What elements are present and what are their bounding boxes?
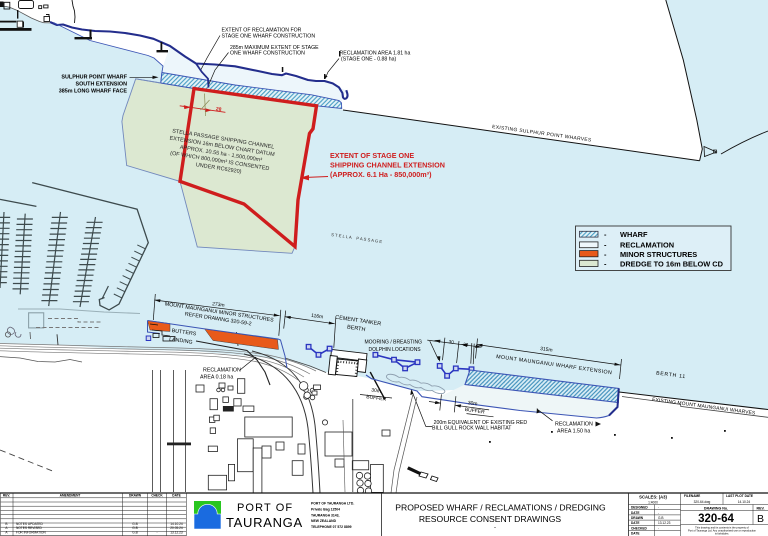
svg-text:G.B: G.B [132,530,138,534]
svg-text:-: - [494,525,496,531]
svg-text:EXTENT OF STAGE ONE: EXTENT OF STAGE ONE [330,151,414,160]
svg-text:CHECKED: CHECKED [631,526,647,530]
svg-text:SCALES: (A3): SCALES: (A3) [639,495,667,500]
svg-text:AMENDMENT: AMENDMENT [60,494,81,498]
svg-text:NEW ZEALAND: NEW ZEALAND [311,519,337,523]
svg-text:DRAWN: DRAWN [129,494,142,498]
svg-text:-: - [658,526,659,530]
svg-text:DREDGE TO 16m BELOW CD: DREDGE TO 16m BELOW CD [620,260,724,269]
svg-text:LAST PLOT DATE: LAST PLOT DATE [726,494,753,498]
svg-text:DRAWING No.: DRAWING No. [704,506,728,510]
svg-text:28: 28 [216,106,223,113]
svg-text:MOORING / BREASTING: MOORING / BREASTING [365,340,423,346]
svg-text:385m LONG WHARF FACE: 385m LONG WHARF FACE [59,89,128,95]
svg-text:AREA 1.50 ha: AREA 1.50 ha [557,429,590,435]
svg-text:DATE: DATE [631,532,639,536]
svg-text:MINOR STRUCTURES: MINOR STRUCTURES [620,250,697,259]
svg-text:DOLPHIN LOCATIONS: DOLPHIN LOCATIONS [369,347,422,353]
svg-text:FILENAME: FILENAME [684,494,700,498]
svg-text:(APPROX. 6.1 Ha - 850,000m³): (APPROX. 6.1 Ha - 850,000m³) [330,170,432,179]
svg-text:ONE WHARF CONSTRUCTION: ONE WHARF CONSTRUCTION [230,51,305,57]
svg-text:320-64.dwg: 320-64.dwg [694,500,711,504]
svg-text:B: B [757,513,764,525]
svg-text:Private Bag 12504: Private Bag 12504 [311,507,340,511]
svg-text:RESOURCE CONSENT DRAWINGS: RESOURCE CONSENT DRAWINGS [419,514,562,524]
svg-text:PROPOSED WHARF / RECLAMATIONS: PROPOSED WHARF / RECLAMATIONS / DREDGING [395,502,606,512]
svg-text:STAGE ONE WHARF CONSTRUCTION: STAGE ONE WHARF CONSTRUCTION [222,33,316,39]
svg-text:-: - [658,506,659,510]
svg-text:REV.: REV. [3,494,10,498]
svg-text:TAURANGA 3143,: TAURANGA 3143, [311,513,340,517]
svg-text:RECLAMATION: RECLAMATION [203,368,241,374]
svg-text:1:4000: 1:4000 [648,500,658,504]
svg-text:G.B: G.B [658,516,664,520]
svg-text:TAURANGA: TAURANGA [226,515,303,530]
svg-text:PORT OF TAURANGA LTD.: PORT OF TAURANGA LTD. [311,502,354,506]
svg-text:SOUTH EXTENSION: SOUTH EXTENSION [75,82,127,88]
svg-text:SHIPPING CHANNEL EXTENSION: SHIPPING CHANNEL EXTENSION [330,161,445,170]
svg-text:CHECK: CHECK [151,494,163,498]
svg-text:SULPHUR POINT WHARF: SULPHUR POINT WHARF [61,74,127,80]
svg-text:TELEPHONE 07 572 8899: TELEPHONE 07 572 8899 [311,525,352,529]
svg-text:320-64: 320-64 [698,513,734,525]
svg-text:-: - [156,530,157,534]
svg-text:13.12.23: 13.12.23 [170,530,183,534]
svg-text:WHARF: WHARF [620,230,648,239]
svg-text:AREA 0.18 ha: AREA 0.18 ha [200,375,233,381]
svg-text:REV.: REV. [756,506,764,510]
svg-text:RECLAMATION: RECLAMATION [620,241,674,250]
svg-text:PORT OF: PORT OF [237,502,293,514]
svg-text:is forbidden.: is forbidden. [715,532,729,536]
svg-text:-: - [658,511,659,515]
svg-text:(STAGE ONE - 0.88 ha): (STAGE ONE - 0.88 ha) [341,56,397,62]
svg-text:DRAWN: DRAWN [631,516,644,520]
svg-text:FOR INFORMATION: FOR INFORMATION [16,530,46,534]
svg-text:DATE: DATE [631,511,639,515]
svg-text:BILL GULL ROCK WALL HABITAT: BILL GULL ROCK WALL HABITAT [432,426,512,432]
svg-text:DESIGNED: DESIGNED [631,506,648,510]
svg-text:DATE: DATE [172,494,180,498]
svg-text:13.12.23: 13.12.23 [658,521,671,525]
svg-text:RECLAMATION: RECLAMATION [555,422,593,428]
svg-text:DATE: DATE [631,521,639,525]
svg-text:14.10.24: 14.10.24 [738,500,751,504]
